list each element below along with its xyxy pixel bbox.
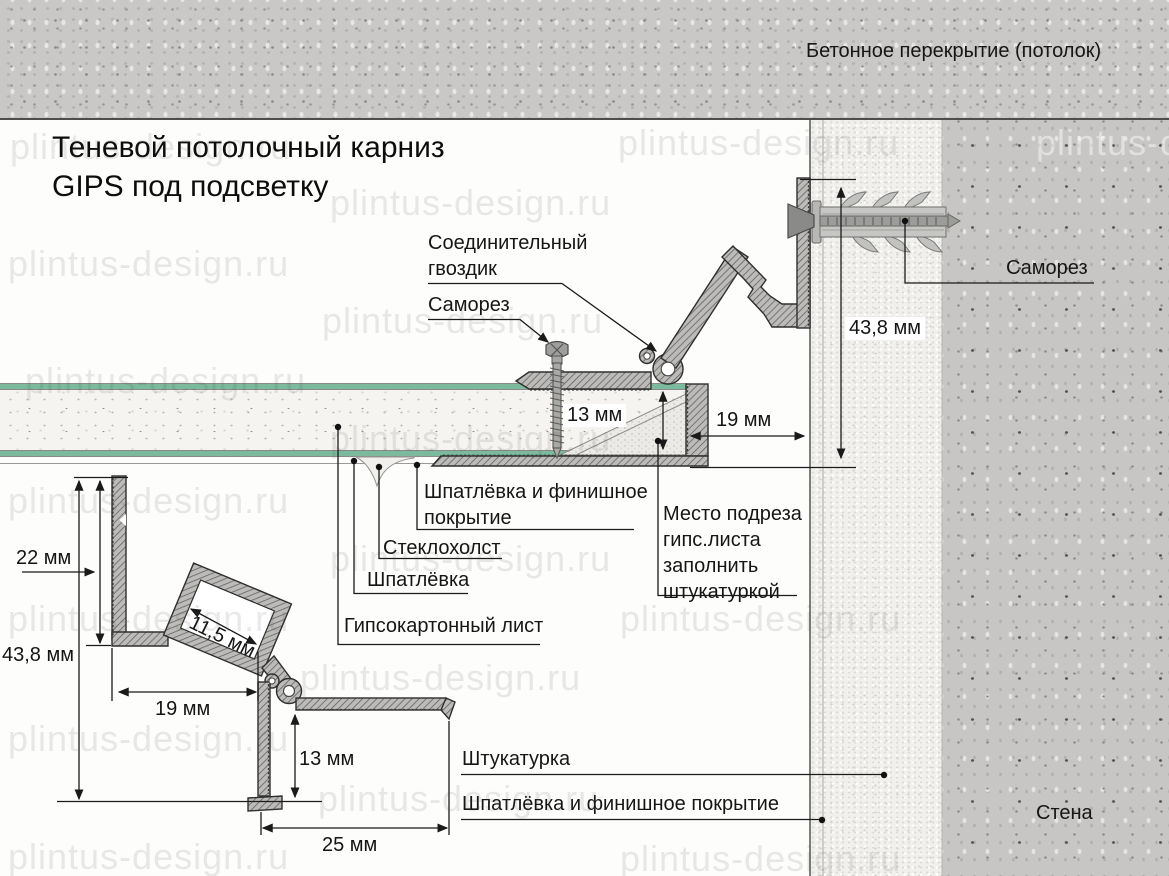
dim-detail-total-height: 43,8 мм — [2, 644, 74, 667]
label-connector-nail-line1: Соединительный — [428, 230, 587, 256]
label-putty-finish-line1: Шпатлёвка и финишное — [424, 479, 648, 505]
drywall-face-bottom — [0, 450, 687, 457]
watermark: plintus-design.ru — [8, 243, 289, 285]
label-cut-area: Место подреза гипс.листа заполнить штука… — [663, 501, 802, 605]
label-connector-nail: Соединительный гвоздик — [428, 230, 587, 282]
watermark: plintus-design.ru — [8, 598, 289, 640]
wall-plaster-layer — [810, 120, 942, 876]
drywall-face-top — [0, 383, 687, 390]
label-putty-finish-full: Шпатлёвка и финишное покрытие — [462, 791, 779, 817]
putty-fillet — [356, 457, 414, 486]
watermark: plintus-design.ru — [8, 718, 289, 760]
label-putty-finish: Шпатлёвка и финишное покрытие — [424, 479, 648, 531]
dim-detail-base-width: 19 мм — [155, 698, 210, 721]
label-ceiling: Бетонное перекрытие (потолок) — [806, 38, 1101, 64]
concrete-wall — [942, 120, 1169, 876]
label-connector-nail-line2: гвоздик — [428, 256, 587, 282]
watermark: plintus-design.ru — [300, 657, 581, 699]
watermark: plintus-design.ru — [8, 836, 289, 876]
label-putty: Шпатлёвка — [367, 567, 469, 593]
dim-detail-bottom-width: 25 мм — [322, 834, 377, 857]
label-cut-area-line2: гипс.листа — [663, 527, 802, 553]
drawing-title: Теневой потолочный карниз GIPS под подсв… — [52, 128, 445, 206]
finish-coat-line — [0, 463, 434, 464]
dim-detail-channel-width: 11,5 мм — [165, 602, 279, 674]
label-cut-area-line3: заполнить — [663, 553, 802, 579]
label-fiberglass: Стеклохолст — [383, 535, 501, 561]
label-plaster: Штукатурка — [462, 746, 570, 772]
label-screw-wall: Саморез — [1006, 255, 1088, 281]
dim-detail-strip-height: 22 мм — [16, 547, 71, 570]
dim-main-gap-width: 19 мм — [716, 409, 771, 432]
technical-drawing-canvas: Теневой потолочный карниз GIPS под подсв… — [0, 0, 1169, 876]
label-cut-area-line4: штукатуркой — [663, 579, 802, 605]
dim-main-drywall-thickness: 13 мм — [563, 404, 626, 427]
dim-detail-lip-height: 13 мм — [299, 748, 354, 771]
label-wall: Стена — [1036, 800, 1093, 826]
drawing-title-line1: Теневой потолочный карниз — [52, 128, 445, 167]
watermark: plintus-design.ru — [8, 480, 289, 522]
label-drywall-sheet: Гипсокартонный лист — [344, 613, 543, 639]
drawing-title-line2: GIPS под подсветку — [52, 167, 445, 206]
label-cut-area-line1: Место подреза — [663, 501, 802, 527]
dim-main-total-height: 43,8 мм — [845, 317, 925, 340]
connector-nail-hole — [644, 353, 675, 376]
label-screw-center: Саморез — [428, 292, 510, 318]
label-putty-finish-line2: покрытие — [424, 505, 648, 531]
cornice-profile-detail — [112, 476, 455, 811]
